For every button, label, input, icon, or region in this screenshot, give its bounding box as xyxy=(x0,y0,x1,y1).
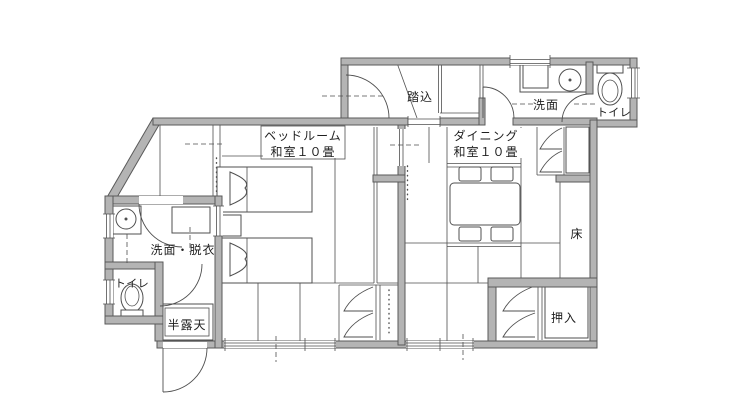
seat-cushion xyxy=(491,167,513,181)
ne-closet-shelf xyxy=(566,127,589,173)
sliding-track xyxy=(538,285,542,340)
bifold-door-icon xyxy=(503,286,535,337)
window xyxy=(104,280,113,304)
sliding-door xyxy=(214,206,223,236)
wall xyxy=(105,316,163,324)
floor-plan-drawing: 踏込 洗面 トイレ ベッドルーム 和室１０畳 ダイニング 和室１０畳 床 押入 … xyxy=(0,0,740,416)
corridor-lines xyxy=(160,125,220,196)
closet-column-lines xyxy=(374,127,398,283)
sink-drain xyxy=(125,218,128,221)
wall xyxy=(488,278,597,287)
cabinet xyxy=(172,207,210,233)
bath-anteroom-door-arc xyxy=(160,264,202,306)
tatami-line xyxy=(258,283,300,341)
room-label-dining-2: 和室１０畳 xyxy=(453,144,518,159)
room-label-toilet-lower: トイレ xyxy=(115,278,150,290)
room-label-bath: 半露天 xyxy=(167,318,206,332)
wall xyxy=(157,341,597,348)
sliding-door xyxy=(397,129,406,166)
wall xyxy=(373,175,405,182)
window xyxy=(104,214,113,238)
room-label-bedroom-2: 和室１０畳 xyxy=(270,144,335,159)
washroom-door-arc xyxy=(483,87,514,118)
tatami-line xyxy=(405,243,560,247)
room-label-bedroom-1: ベッドルーム xyxy=(264,129,342,143)
entry-door-arc xyxy=(346,75,389,118)
room-label-alcove: 床 xyxy=(570,227,583,241)
dining-table xyxy=(450,183,520,225)
door-opening xyxy=(163,342,207,348)
seat-cushion xyxy=(459,227,481,241)
wall xyxy=(479,98,485,125)
wall xyxy=(597,120,637,127)
wall xyxy=(488,287,496,341)
bifold-door-icon xyxy=(540,128,562,172)
wall xyxy=(155,262,163,341)
seat-cushion xyxy=(491,227,513,241)
wall-diagonal xyxy=(106,118,163,199)
wall xyxy=(153,118,408,125)
tatami-line xyxy=(447,164,521,168)
room-label-washroom-upper: 洗面 xyxy=(533,98,559,112)
room-label-dining-1: ダイニング xyxy=(453,128,518,143)
floor-plan: 踏込 洗面 トイレ ベッドルーム 和室１０畳 ダイニング 和室１０畳 床 押入 … xyxy=(0,0,740,416)
entry-partition xyxy=(439,62,442,113)
window xyxy=(224,341,336,348)
bifold-door-icon xyxy=(344,287,373,337)
wall xyxy=(556,175,590,182)
toilet-icon xyxy=(598,73,622,105)
wall xyxy=(586,62,593,94)
door-opening xyxy=(139,196,183,204)
room-label-closet: 押入 xyxy=(551,311,577,325)
wall xyxy=(513,118,597,125)
seat-cushion xyxy=(459,167,481,181)
room-label-toilet-upper: トイレ xyxy=(597,107,632,119)
exterior-bath-door-arc xyxy=(163,348,207,392)
window xyxy=(629,68,637,98)
wall xyxy=(590,120,597,348)
wall xyxy=(341,58,348,118)
vanity-cabinet xyxy=(523,65,548,88)
room-label-entrance: 踏込 xyxy=(407,90,433,104)
wall xyxy=(440,118,482,125)
sink-drain xyxy=(569,79,572,82)
ne-closet-lines xyxy=(537,127,564,175)
tatami-line xyxy=(405,283,488,341)
wall xyxy=(105,262,163,269)
room-label-dressing: 洗面・脱衣 xyxy=(150,242,215,257)
sliding-track xyxy=(376,285,380,340)
